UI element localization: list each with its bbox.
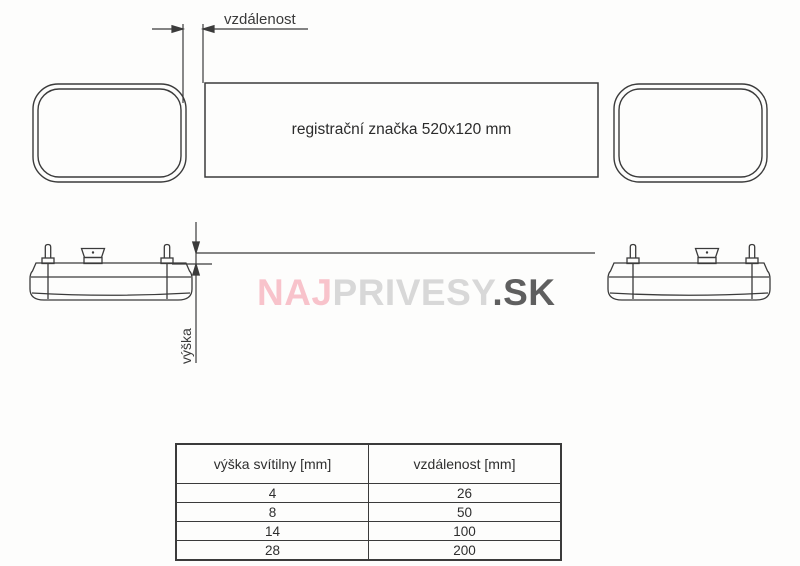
cell-height-3: 28 xyxy=(176,541,369,561)
table-row: 14 100 xyxy=(176,522,561,541)
table-header-height: výška svítilny [mm] xyxy=(176,444,369,484)
lamp-top-view-right xyxy=(614,84,767,182)
mounting-bolt-icon xyxy=(45,245,50,259)
cell-distance-1: 50 xyxy=(369,503,562,522)
watermark-sk: .SK xyxy=(492,272,555,313)
cell-height-1: 8 xyxy=(176,503,369,522)
table-row: 28 200 xyxy=(176,541,561,561)
technical-drawing-canvas: vzdálenost registrační značka 520x120 mm… xyxy=(0,0,800,566)
dimension-arrow-down-icon xyxy=(193,242,200,253)
dimension-arrow-right-icon xyxy=(172,26,183,33)
height-dimension-label: výška xyxy=(178,328,194,364)
lamp-side-view-right xyxy=(608,245,770,301)
cell-distance-2: 100 xyxy=(369,522,562,541)
table-header-distance: vzdálenost [mm] xyxy=(369,444,562,484)
dimension-arrow-left-icon xyxy=(203,26,214,33)
cell-height-2: 14 xyxy=(176,522,369,541)
mounting-bolt-icon xyxy=(164,245,169,259)
watermark-privesy: PRIVESY xyxy=(333,272,493,313)
registration-plate-label: registrační značka 520x120 mm xyxy=(205,83,598,177)
cell-distance-0: 26 xyxy=(369,484,562,503)
cell-distance-3: 200 xyxy=(369,541,562,561)
lamp-top-view-left xyxy=(33,84,186,182)
watermark-logo: NAJPRIVESY.SK xyxy=(257,274,556,311)
table-header-row: výška svítilny [mm] vzdálenost [mm] xyxy=(176,444,561,484)
table-row: 4 26 xyxy=(176,484,561,503)
dimension-table: výška svítilny [mm] vzdálenost [mm] 4 26… xyxy=(175,443,562,561)
cell-height-0: 4 xyxy=(176,484,369,503)
lamp-side-view-left xyxy=(30,245,192,301)
table-row: 8 50 xyxy=(176,503,561,522)
distance-dimension-label: vzdálenost xyxy=(224,11,296,28)
watermark-naj: NAJ xyxy=(257,272,333,313)
dimension-arrow-up-icon xyxy=(193,264,200,275)
